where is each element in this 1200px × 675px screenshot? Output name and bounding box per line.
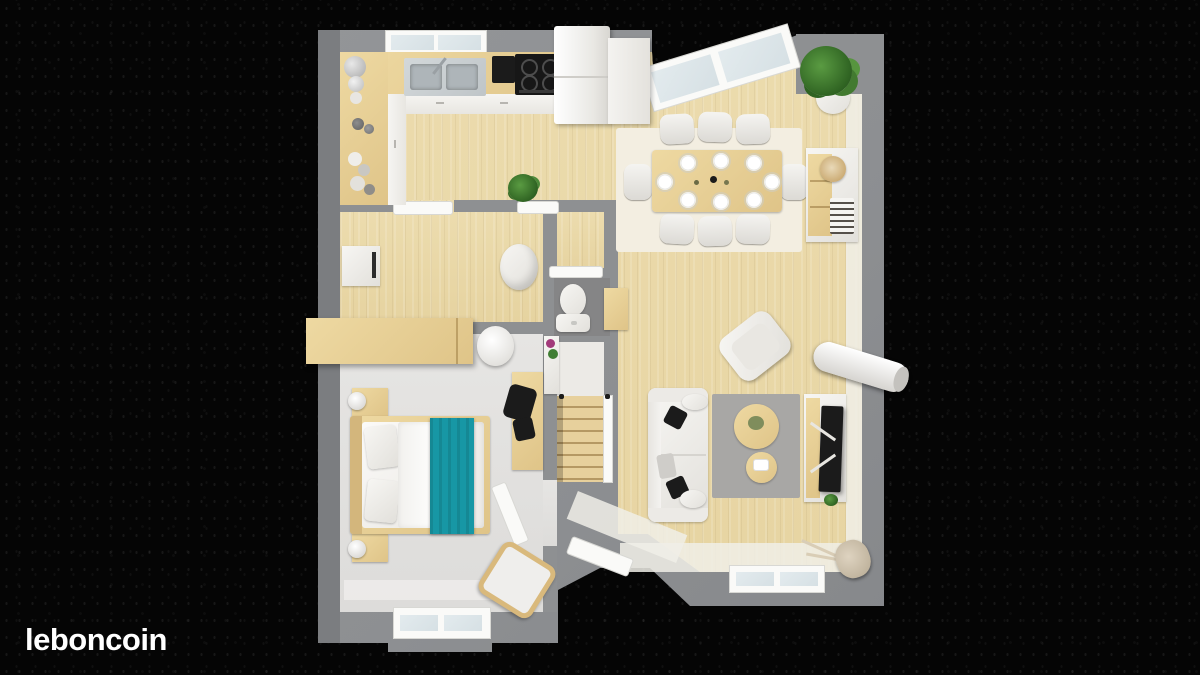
- dining-chair-3: [735, 113, 770, 144]
- dining-chair-5: [697, 215, 732, 246]
- bay-window-pane-2: [780, 572, 818, 586]
- kitchen-window: [386, 31, 486, 54]
- sofa-round-pillow: [682, 394, 708, 410]
- dining-chair-7: [624, 164, 652, 200]
- cabinet-handle-3: [394, 140, 396, 148]
- dining-chair-8: [780, 164, 808, 200]
- dining-chair: [659, 113, 695, 145]
- sink-basin-2: [446, 64, 478, 90]
- plate-2: [713, 153, 729, 169]
- kitchen-plant: [508, 174, 538, 202]
- wardrobe-end-line: [456, 318, 458, 364]
- round-mirror: [820, 156, 846, 182]
- tv-screen: [819, 406, 844, 493]
- kitchen-window-pane-2: [438, 35, 481, 50]
- burner-icon: [521, 59, 538, 76]
- washing-machine: [342, 246, 380, 286]
- office-chair-seat: [512, 416, 536, 442]
- side-table-tray: [754, 460, 768, 470]
- kitchen-canister-4: [364, 184, 375, 195]
- tv-console-plant: [824, 494, 838, 506]
- sink-unit: [404, 58, 486, 96]
- round-chair: [500, 244, 538, 290]
- staircase-shadow: [557, 396, 563, 482]
- plate-7: [657, 174, 673, 190]
- leboncoin-logo: leboncoin: [25, 622, 167, 658]
- plate: [680, 155, 696, 171]
- sofa-round-pillow-2: [680, 490, 706, 508]
- corner-plant: [800, 46, 852, 96]
- wc-door: [550, 267, 602, 277]
- landing-floor: [557, 342, 604, 396]
- kitchen-pot-2: [364, 124, 374, 134]
- wc-side-cabinet: [604, 288, 628, 330]
- bed-headboard: [350, 416, 362, 534]
- flower-bouquet: [546, 339, 555, 348]
- floorplan-scene: leboncoin: [0, 0, 1200, 675]
- plate-5: [713, 194, 729, 210]
- kitchen-jar-2: [348, 76, 364, 92]
- plate-3: [746, 155, 762, 171]
- sofa-armrest-2: [648, 508, 708, 522]
- washing-machine-slot: [372, 252, 376, 278]
- kitchen-canister-2: [358, 164, 370, 176]
- shelf-line-2: [810, 206, 830, 208]
- kitchen-tall-cabinet: [608, 38, 650, 124]
- pillow-2: [364, 478, 400, 523]
- leboncoin-logo-text: leboncoin: [25, 622, 167, 657]
- dining-chair-6: [735, 213, 770, 244]
- kitchen-canister-3: [350, 176, 365, 191]
- bay-window-pane: [736, 572, 774, 586]
- coffee-table-plant: [748, 416, 764, 430]
- toilet-bowl: [560, 284, 586, 316]
- kitchen-cabinet-face-left: [388, 94, 406, 205]
- bedroom-window-pane: [400, 615, 438, 631]
- cabinet-handle: [436, 102, 444, 104]
- pillow: [364, 424, 401, 470]
- newel-post-2: [605, 394, 610, 399]
- cylinder-end: [891, 365, 912, 394]
- doorway-bedroom: [543, 480, 557, 546]
- book-stack: [830, 198, 854, 234]
- cabinet-handle-2: [500, 102, 508, 104]
- bedside-lamp-2: [348, 540, 366, 558]
- dining-chair-4: [659, 213, 695, 245]
- kitchen-window-pane: [391, 35, 434, 50]
- flower-greens: [548, 349, 558, 359]
- table-centerpiece: [710, 176, 717, 183]
- fridge-divider: [554, 76, 610, 78]
- hall-door: [518, 202, 558, 213]
- bedroom-window-pane-2: [444, 615, 482, 631]
- kitchen-cup: [350, 92, 362, 104]
- table-centerpiece-3: [724, 180, 729, 185]
- kitchen-jar: [344, 56, 366, 78]
- plate-8: [764, 174, 780, 190]
- stair-railing: [604, 396, 612, 482]
- newel-post: [559, 394, 564, 399]
- dining-chair-2: [697, 111, 732, 142]
- floor-strip-east: [846, 58, 862, 572]
- bedside-lamp: [348, 392, 366, 410]
- toilet-flush-button: [571, 321, 577, 325]
- fridge: [554, 26, 610, 124]
- living-bay-window: [730, 566, 824, 592]
- bedroom-window: [394, 608, 490, 638]
- kitchen-pot: [352, 118, 364, 130]
- paper-lantern: [477, 326, 514, 366]
- plate-6: [746, 192, 762, 208]
- plate-4: [680, 192, 696, 208]
- table-centerpiece-2: [694, 180, 699, 185]
- wardrobe: [306, 318, 473, 364]
- coffee-machine: [492, 56, 515, 83]
- teal-throw: [430, 418, 474, 534]
